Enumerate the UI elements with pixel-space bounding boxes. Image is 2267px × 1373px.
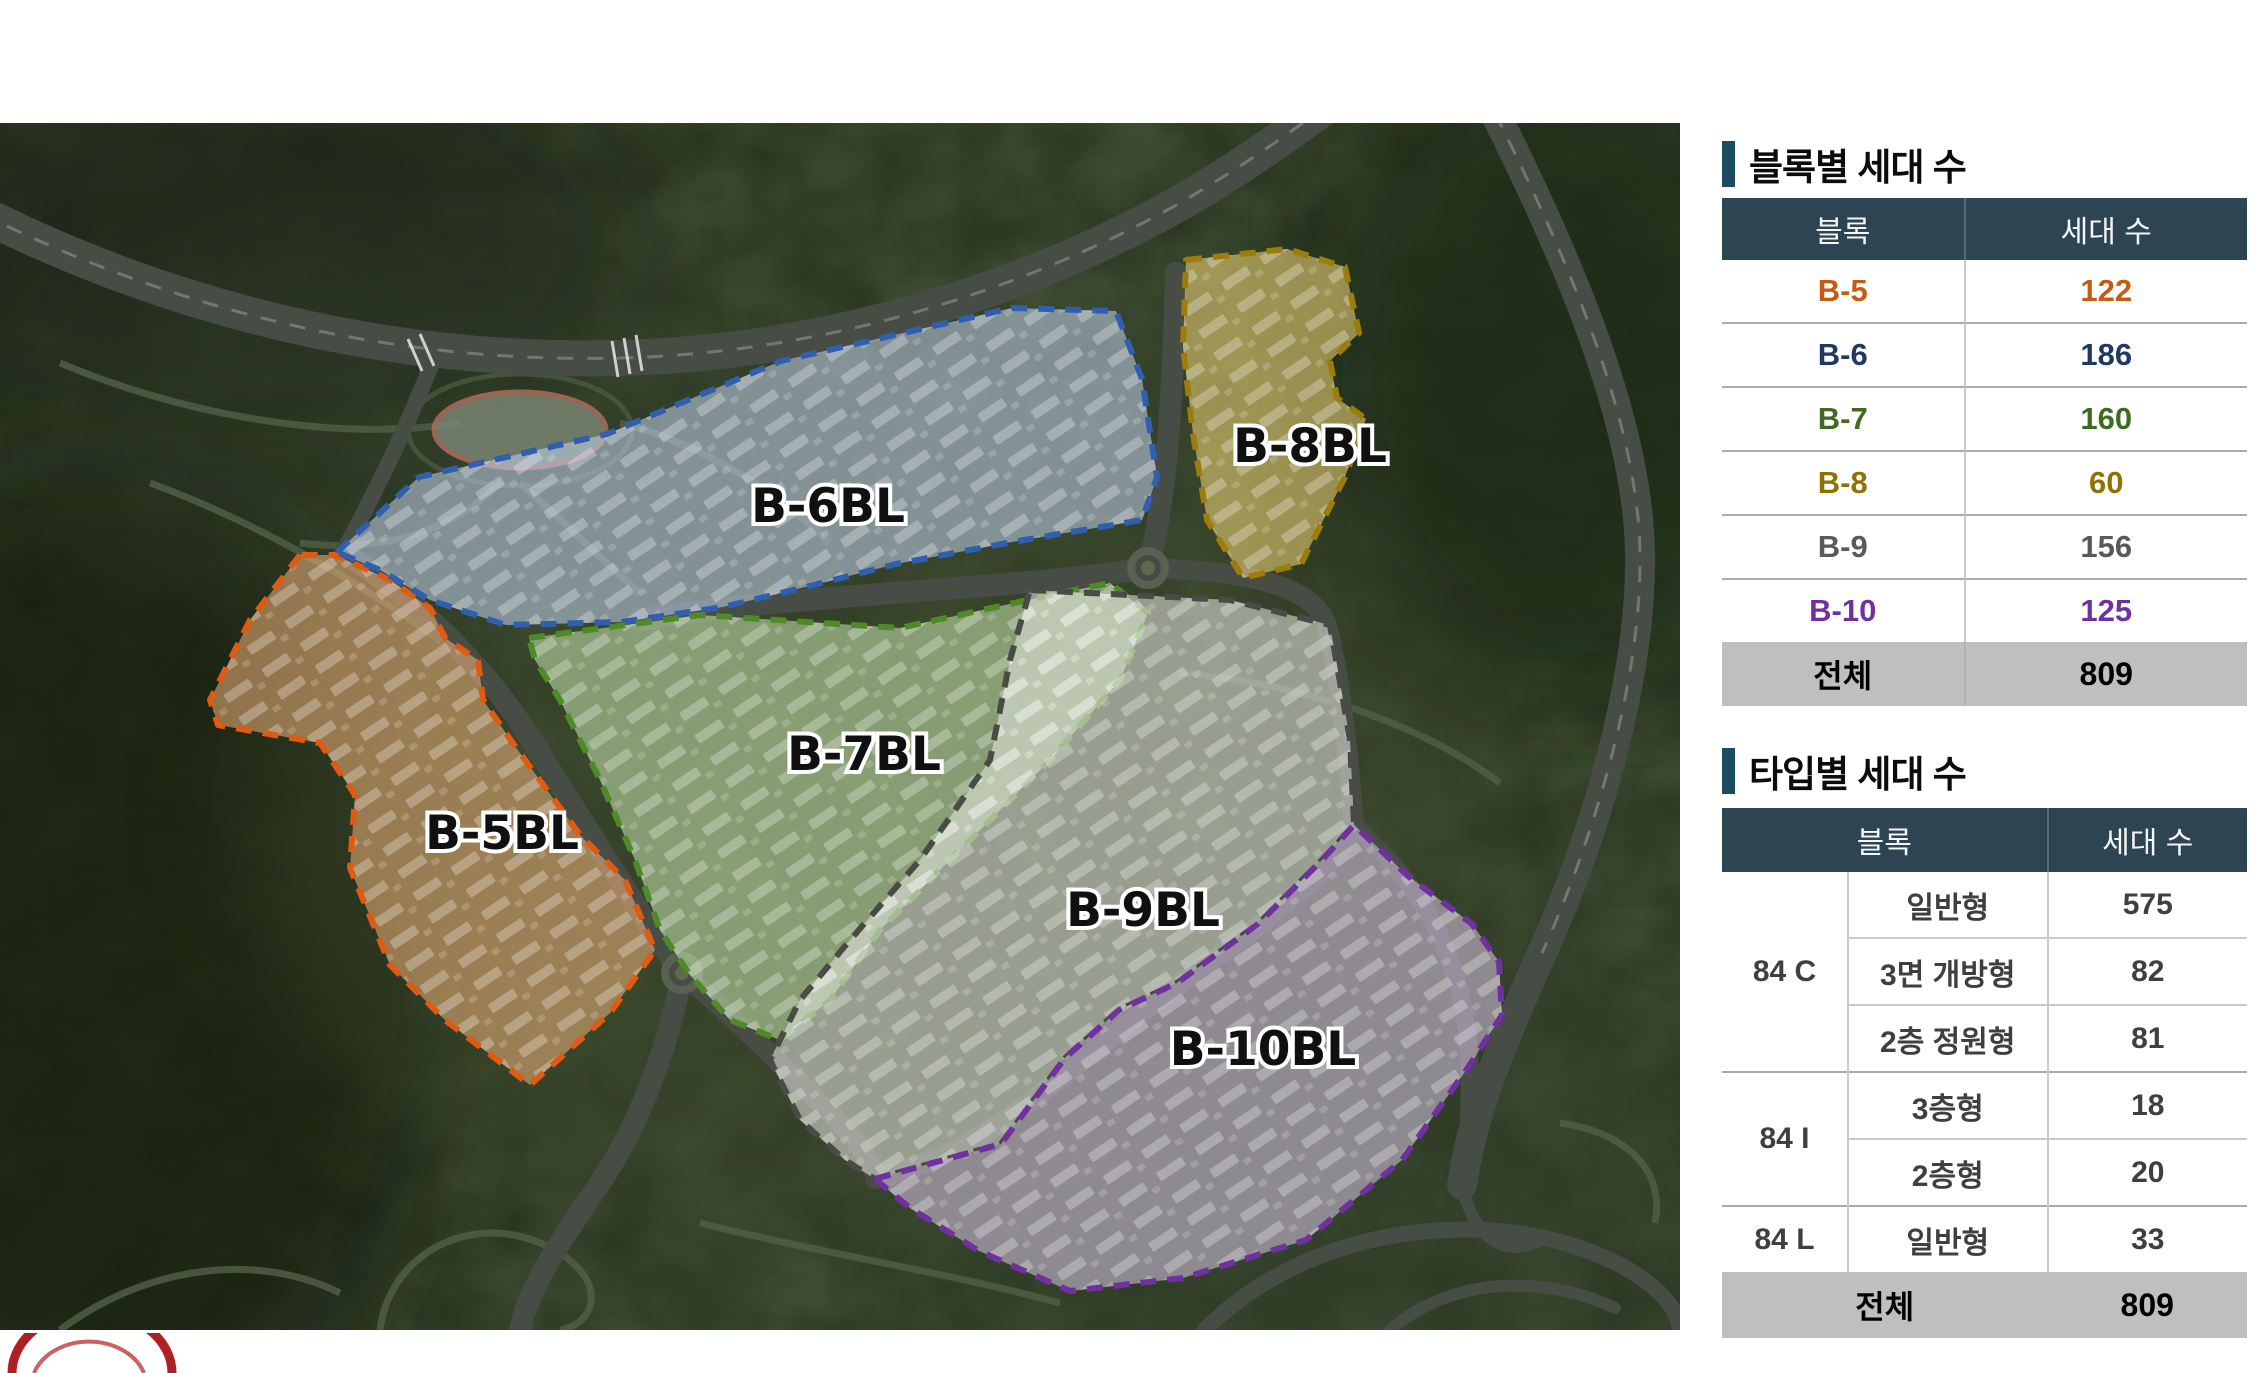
title-accent-bar-2 [1722, 748, 1735, 794]
type-table-group-84-i: 84 I [1722, 1072, 1848, 1206]
block-table-count-b-5: 122 [1965, 260, 2248, 323]
block-table-count-b-7: 160 [1965, 387, 2248, 451]
type-table-row: 84 I3층형18 [1722, 1072, 2247, 1139]
block-table-block-b-9: B-9 [1722, 515, 1965, 579]
block-b-9-label: B-9BL [1066, 883, 1220, 938]
block-table-total-label: 전체 [1722, 642, 1965, 706]
type-table-count-cell: 575 [2048, 872, 2248, 938]
type-table-title-row: 타입별 세대 수 [1722, 744, 1966, 798]
block-b-5-label: B-5BL [425, 806, 579, 861]
type-table-count-cell: 33 [2048, 1206, 2248, 1272]
type-table-group-84-l: 84 L [1722, 1206, 1848, 1272]
logo-arc-path-inner [34, 1342, 144, 1373]
map-layers: B-5BLB-6BLB-7BLB-8BLB-9BLB-10BL [0, 123, 1680, 1330]
type-table-type-cell: 2층 정원형 [1848, 1005, 2048, 1072]
block-table-block-b-10: B-10 [1722, 579, 1965, 642]
block-b-7-label: B-7BL [787, 727, 941, 782]
site-plan-svg: B-5BLB-6BLB-7BLB-8BLB-9BLB-10BL [0, 123, 1680, 1330]
block-table-body: B-5122B-6186B-7160B-860B-9156B-10125 [1722, 260, 2247, 642]
block-b-8-label: B-8BL [1233, 419, 1387, 474]
type-table-row: 84 L일반형33 [1722, 1206, 2247, 1272]
type-table-type-cell: 3층형 [1848, 1072, 2048, 1139]
block-table-title-row: 블록별 세대 수 [1722, 137, 1966, 191]
type-table-count-cell: 18 [2048, 1072, 2248, 1139]
type-table-header-row: 블록 세대 수 [1722, 808, 2247, 872]
type-table-count-cell: 81 [2048, 1005, 2248, 1072]
block-table-block-b-6: B-6 [1722, 323, 1965, 387]
block-table-block-b-8: B-8 [1722, 451, 1965, 515]
type-table-count-cell: 82 [2048, 938, 2248, 1005]
type-table-group-84-c: 84 C [1722, 872, 1848, 1072]
block-table-col-count: 세대 수 [1965, 198, 2248, 260]
block-table-row-b-6: B-6186 [1722, 323, 2247, 387]
type-table-total-value: 809 [2048, 1272, 2248, 1338]
type-table-total-label: 전체 [1722, 1272, 2048, 1338]
type-table-col-block: 블록 [1722, 808, 2048, 872]
block-table-row-b-8: B-860 [1722, 451, 2247, 515]
block-table-col-block: 블록 [1722, 198, 1965, 260]
type-table-type-cell: 3면 개방형 [1848, 938, 2048, 1005]
block-table-count-b-6: 186 [1965, 323, 2248, 387]
type-table-total-row: 전체 809 [1722, 1272, 2247, 1338]
block-table-count-b-8: 60 [1965, 451, 2248, 515]
block-table-title: 블록별 세대 수 [1749, 137, 1966, 191]
title-accent-bar [1722, 141, 1735, 187]
type-table-type-cell: 일반형 [1848, 1206, 2048, 1272]
type-table-title: 타입별 세대 수 [1749, 744, 1966, 798]
block-table-count-b-9: 156 [1965, 515, 2248, 579]
type-table-row: 84 C일반형575 [1722, 872, 2247, 938]
type-table-col-count: 세대 수 [2048, 808, 2248, 872]
block-table-row-b-7: B-7160 [1722, 387, 2247, 451]
type-table-type-cell: 일반형 [1848, 872, 2048, 938]
type-table-count-cell: 20 [2048, 1139, 2248, 1206]
logo-arc [4, 1333, 214, 1373]
slide-page: B-5BLB-6BLB-7BLB-8BLB-9BLB-10BL 블록별 세대 수… [0, 0, 2267, 1373]
block-b-10-label: B-10BL [1170, 1022, 1357, 1077]
block-table-row-b-5: B-5122 [1722, 260, 2247, 323]
site-plan-map: B-5BLB-6BLB-7BLB-8BLB-9BLB-10BL [0, 123, 1680, 1330]
type-table: 블록 세대 수 84 C일반형5753면 개방형822층 정원형8184 I3층… [1722, 808, 2247, 1338]
type-table-type-cell: 2층형 [1848, 1139, 2048, 1206]
block-table-total-value: 809 [1965, 642, 2248, 706]
block-table-total-row: 전체 809 [1722, 642, 2247, 706]
block-table-row-b-10: B-10125 [1722, 579, 2247, 642]
type-table-body: 84 C일반형5753면 개방형822층 정원형8184 I3층형182층형20… [1722, 872, 2247, 1272]
block-table-count-b-10: 125 [1965, 579, 2248, 642]
block-table: 블록 세대 수 B-5122B-6186B-7160B-860B-9156B-1… [1722, 198, 2247, 706]
block-table-block-b-7: B-7 [1722, 387, 1965, 451]
block-table-header-row: 블록 세대 수 [1722, 198, 2247, 260]
roundabout-north-island [1141, 561, 1155, 575]
block-table-row-b-9: B-9156 [1722, 515, 2247, 579]
block-b-6-label: B-6BL [751, 479, 905, 534]
block-table-block-b-5: B-5 [1722, 260, 1965, 323]
